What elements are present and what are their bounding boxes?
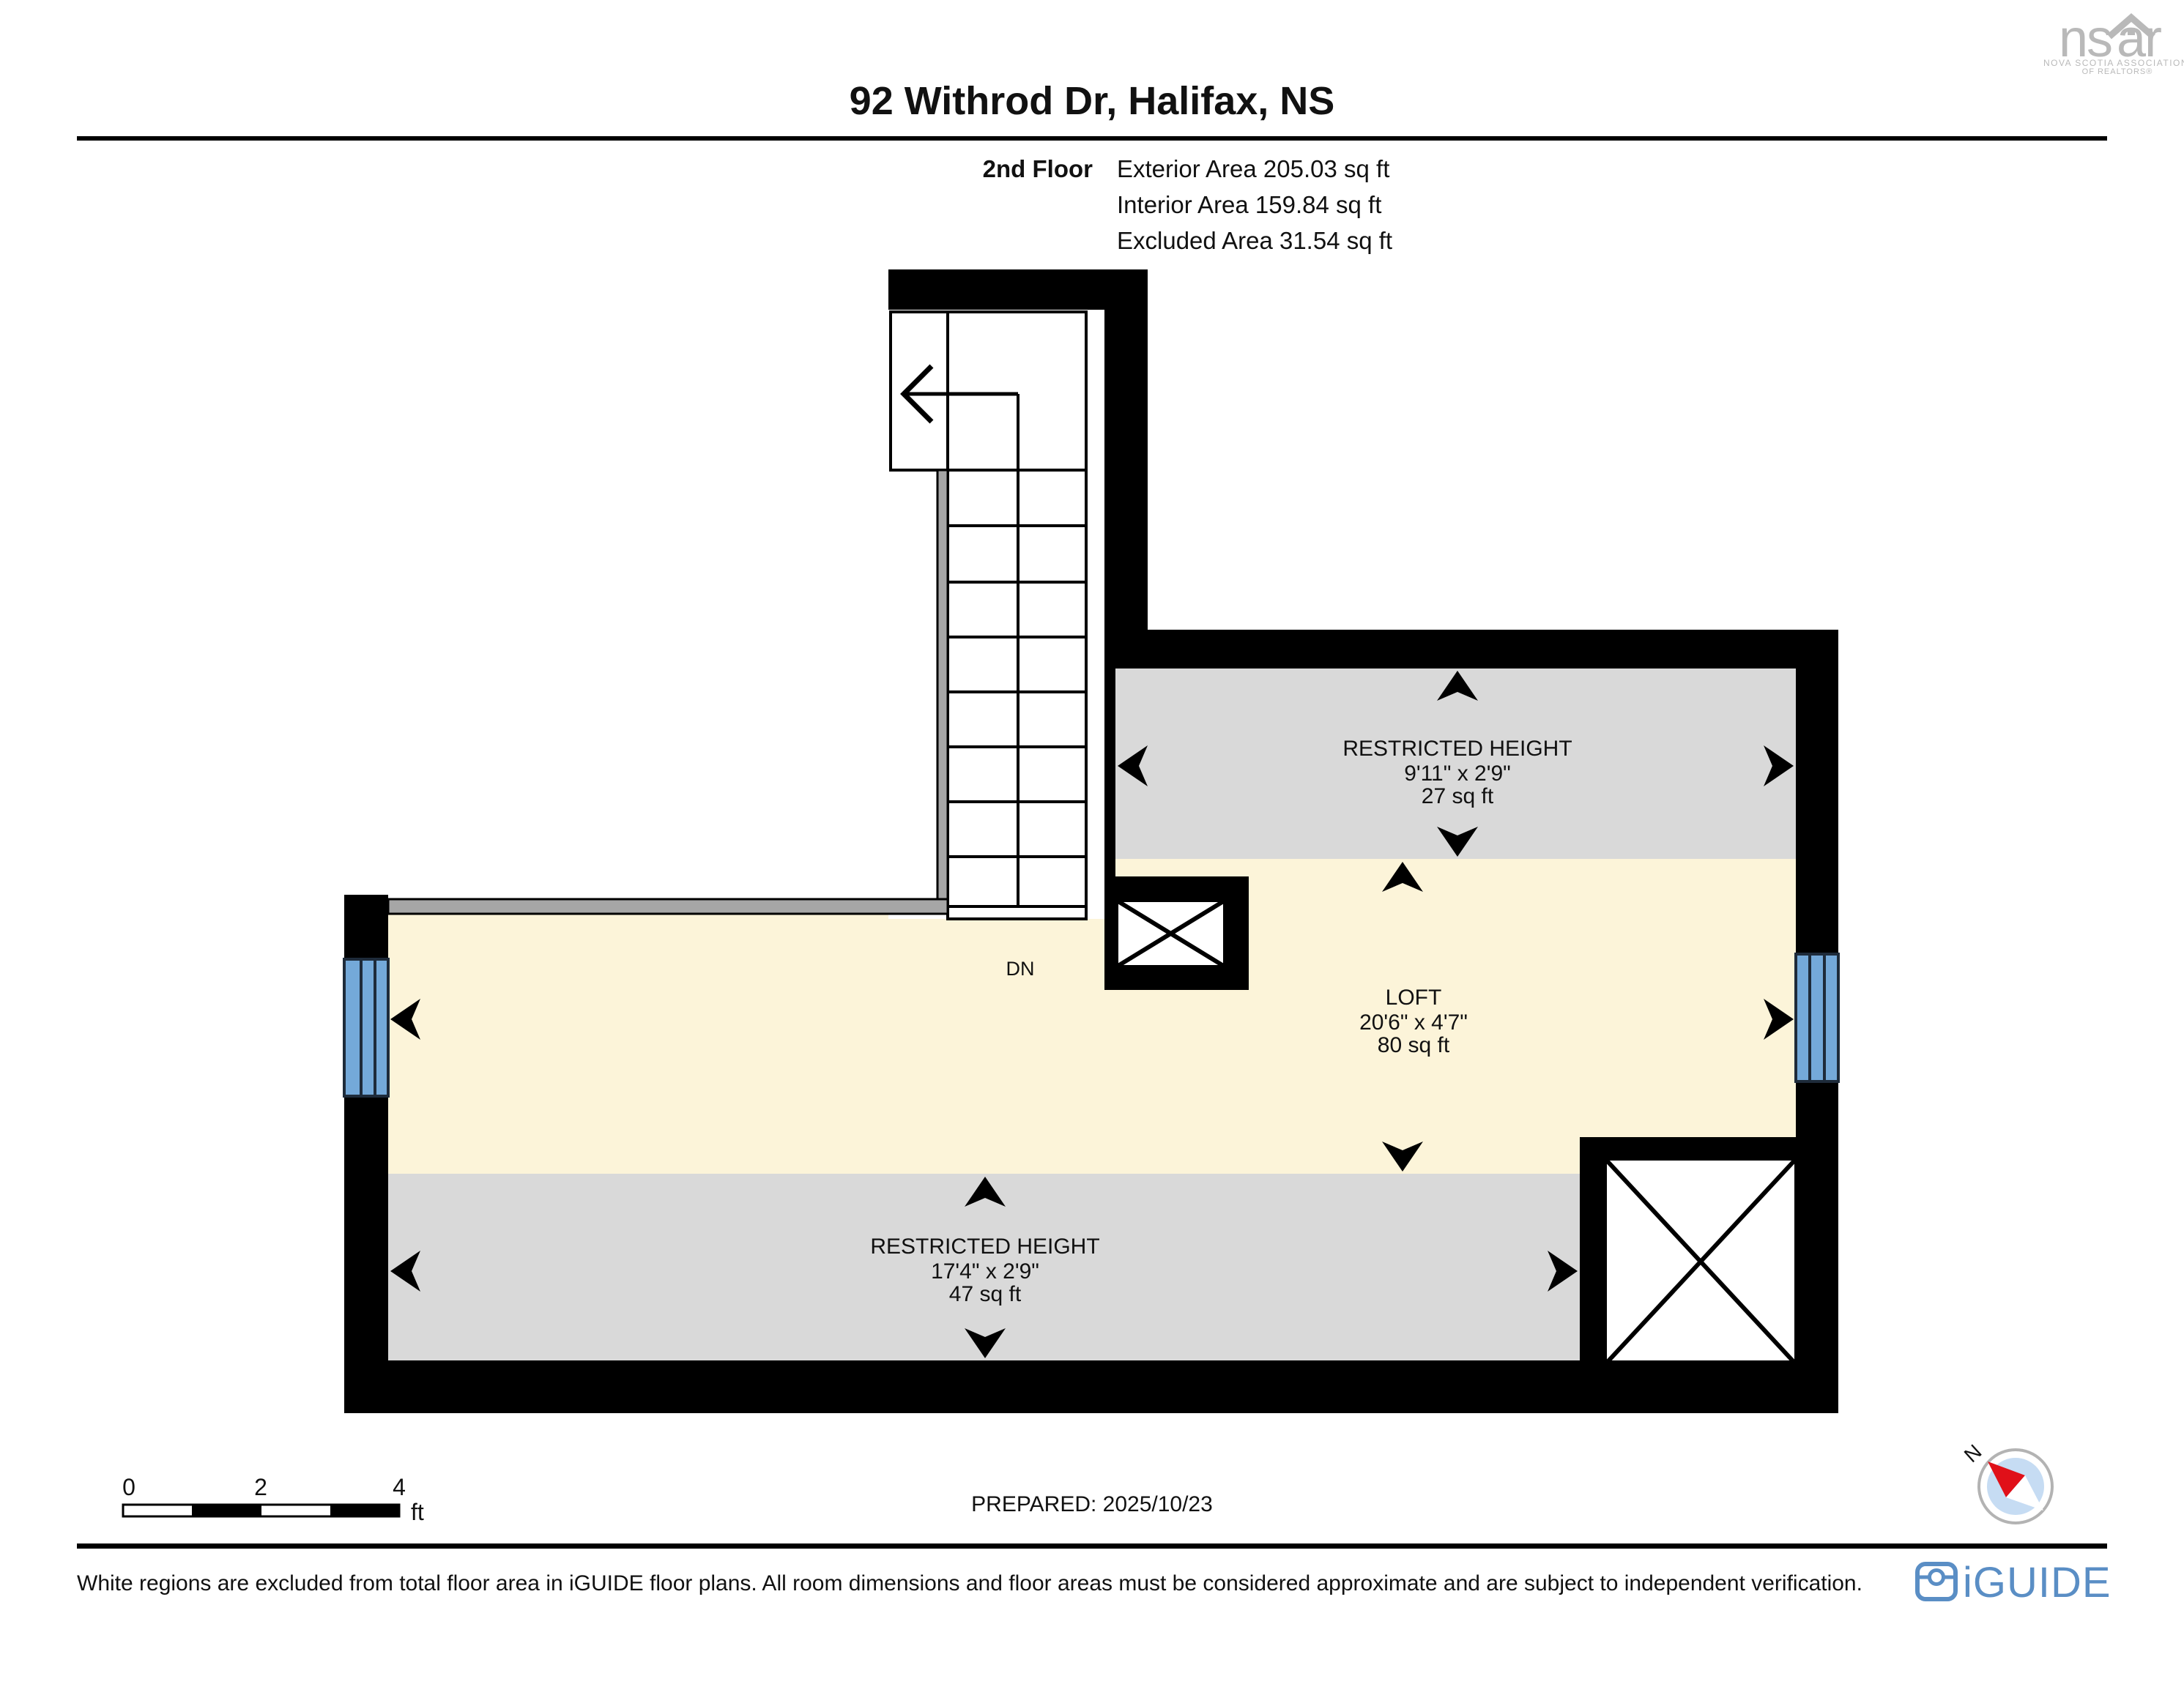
footer-divider xyxy=(77,1543,2107,1549)
interior-area-text: Interior Area 159.84 sq ft xyxy=(1117,191,1381,218)
scale-tick-4: 4 xyxy=(393,1474,406,1500)
compass-north-label: N xyxy=(1960,1440,1986,1467)
iguide-wordmark: iGUIDE xyxy=(1963,1559,2111,1606)
floor-plan-page: 92 Withrod Dr, Halifax, NS 2nd Floor Ext… xyxy=(0,0,2184,1687)
stair-down-label: DN xyxy=(1006,958,1035,980)
stairwell xyxy=(888,310,1104,919)
wall-bottom xyxy=(344,1360,1838,1413)
excluded-area-text: Excluded Area 31.54 sq ft xyxy=(1117,227,1392,254)
header: 92 Withrod Dr, Halifax, NS 2nd Floor Ext… xyxy=(77,79,2107,254)
stair-railing-vertical xyxy=(937,470,948,914)
disclaimer-text: White regions are excluded from total fl… xyxy=(77,1571,1862,1595)
room-area: 27 sq ft xyxy=(1422,784,1494,808)
room-name: RESTRICTED HEIGHT xyxy=(870,1234,1099,1259)
compass: N xyxy=(1960,1440,2052,1523)
nsar-logo: ns ar NOVA SCOTIA ASSOCIATION OF REALTOR… xyxy=(2043,10,2184,76)
stair-landing xyxy=(891,312,948,470)
room-dims: 9'11" x 2'9" xyxy=(1404,761,1511,786)
scale-tick-2: 2 xyxy=(254,1474,267,1500)
loft-railing xyxy=(388,899,948,914)
nsar-subtitle-1: NOVA SCOTIA ASSOCIATION xyxy=(2043,58,2184,68)
room-area: 80 sq ft xyxy=(1378,1033,1450,1057)
scale-tick-0: 0 xyxy=(122,1474,135,1500)
wall-room-top xyxy=(1104,630,1838,669)
window-right xyxy=(1796,954,1838,1081)
footer: 0 2 4 ft PREPARED: 2025/10/23 N White re… xyxy=(77,1440,2111,1606)
wall-stair-thin xyxy=(1104,669,1115,876)
scale-unit: ft xyxy=(411,1499,424,1525)
wall-stair-top xyxy=(888,269,1148,310)
opening-small xyxy=(1104,876,1249,990)
header-divider xyxy=(77,136,2107,141)
floor-label: 2nd Floor xyxy=(983,155,1093,182)
room-dims: 17'4" x 2'9" xyxy=(931,1259,1039,1284)
house-chimney-icon xyxy=(2128,28,2135,35)
page-title: 92 Withrod Dr, Halifax, NS xyxy=(850,79,1335,123)
room-name: RESTRICTED HEIGHT xyxy=(1342,737,1572,761)
window-left xyxy=(344,959,388,1096)
iguide-logo: iGUIDE xyxy=(1917,1559,2111,1606)
nsar-subtitle-2: OF REALTORS® xyxy=(2082,67,2153,76)
room-dims: 20'6" x 4'7" xyxy=(1359,1010,1468,1035)
wall-stair-right xyxy=(1104,310,1148,630)
scale-bar: 0 2 4 ft xyxy=(122,1474,424,1525)
prepared-date: PREPARED: 2025/10/23 xyxy=(971,1492,1213,1516)
exterior-area-text: Exterior Area 205.03 sq ft xyxy=(1117,155,1389,182)
room-name: LOFT xyxy=(1386,986,1442,1010)
floor-plan-drawing: RESTRICTED HEIGHT 9'11" x 2'9" 27 sq ft … xyxy=(344,269,1838,1413)
exterior-notch xyxy=(388,859,938,901)
room-area: 47 sq ft xyxy=(949,1282,1022,1306)
